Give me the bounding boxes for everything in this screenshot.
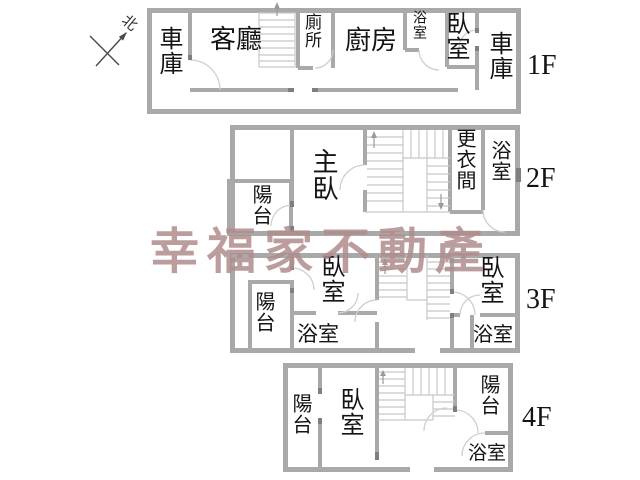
room-label-4f-balcony-left: 陽台 xyxy=(290,393,310,435)
room-label-4f-bedroom: 臥室 xyxy=(337,387,361,437)
room-label-4f-balcony-right: 陽台 xyxy=(478,374,498,416)
room-label-2f-dressing-room: 更衣間 xyxy=(454,128,474,191)
floor-label-2f: 2F xyxy=(526,163,556,195)
room-label-4f-bathroom: 浴室 xyxy=(468,444,506,464)
room-label-2f-master-bedroom: 主臥 xyxy=(310,148,336,202)
floor-label-3f: 3F xyxy=(526,284,556,316)
floor-label-4f: 4F xyxy=(522,402,552,434)
f4-entry-gap xyxy=(410,464,434,473)
room-label-1f-kitchen: 廚房 xyxy=(345,27,397,54)
f2-stairs xyxy=(365,130,450,212)
room-label-1f-toilet: 廁所 xyxy=(303,13,320,49)
f4-stairs xyxy=(377,368,455,420)
f3-entry-gap xyxy=(415,347,440,355)
room-label-1f-bedroom: 臥室 xyxy=(443,11,467,61)
room-label-1f-garage-right: 車庫 xyxy=(486,31,510,81)
room-label-1f-bathroom: 浴室 xyxy=(411,10,425,40)
room-label-3f-bathroom-left: 浴室 xyxy=(297,324,339,346)
floor-label-1f: 1F xyxy=(527,50,557,82)
watermark: 幸福家不動產 xyxy=(150,212,492,283)
room-label-3f-bathroom-right: 浴室 xyxy=(473,325,513,346)
north-label: 北 xyxy=(118,12,140,35)
room-label-1f-garage-left: 車庫 xyxy=(156,26,180,76)
room-label-1f-living-room: 客廳 xyxy=(210,26,262,53)
north-arrow-icon: 北 xyxy=(90,12,141,66)
floorplan-page: 北 xyxy=(0,0,640,480)
room-label-2f-bathroom: 浴室 xyxy=(489,140,509,182)
room-label-3f-balcony: 陽台 xyxy=(253,291,273,333)
